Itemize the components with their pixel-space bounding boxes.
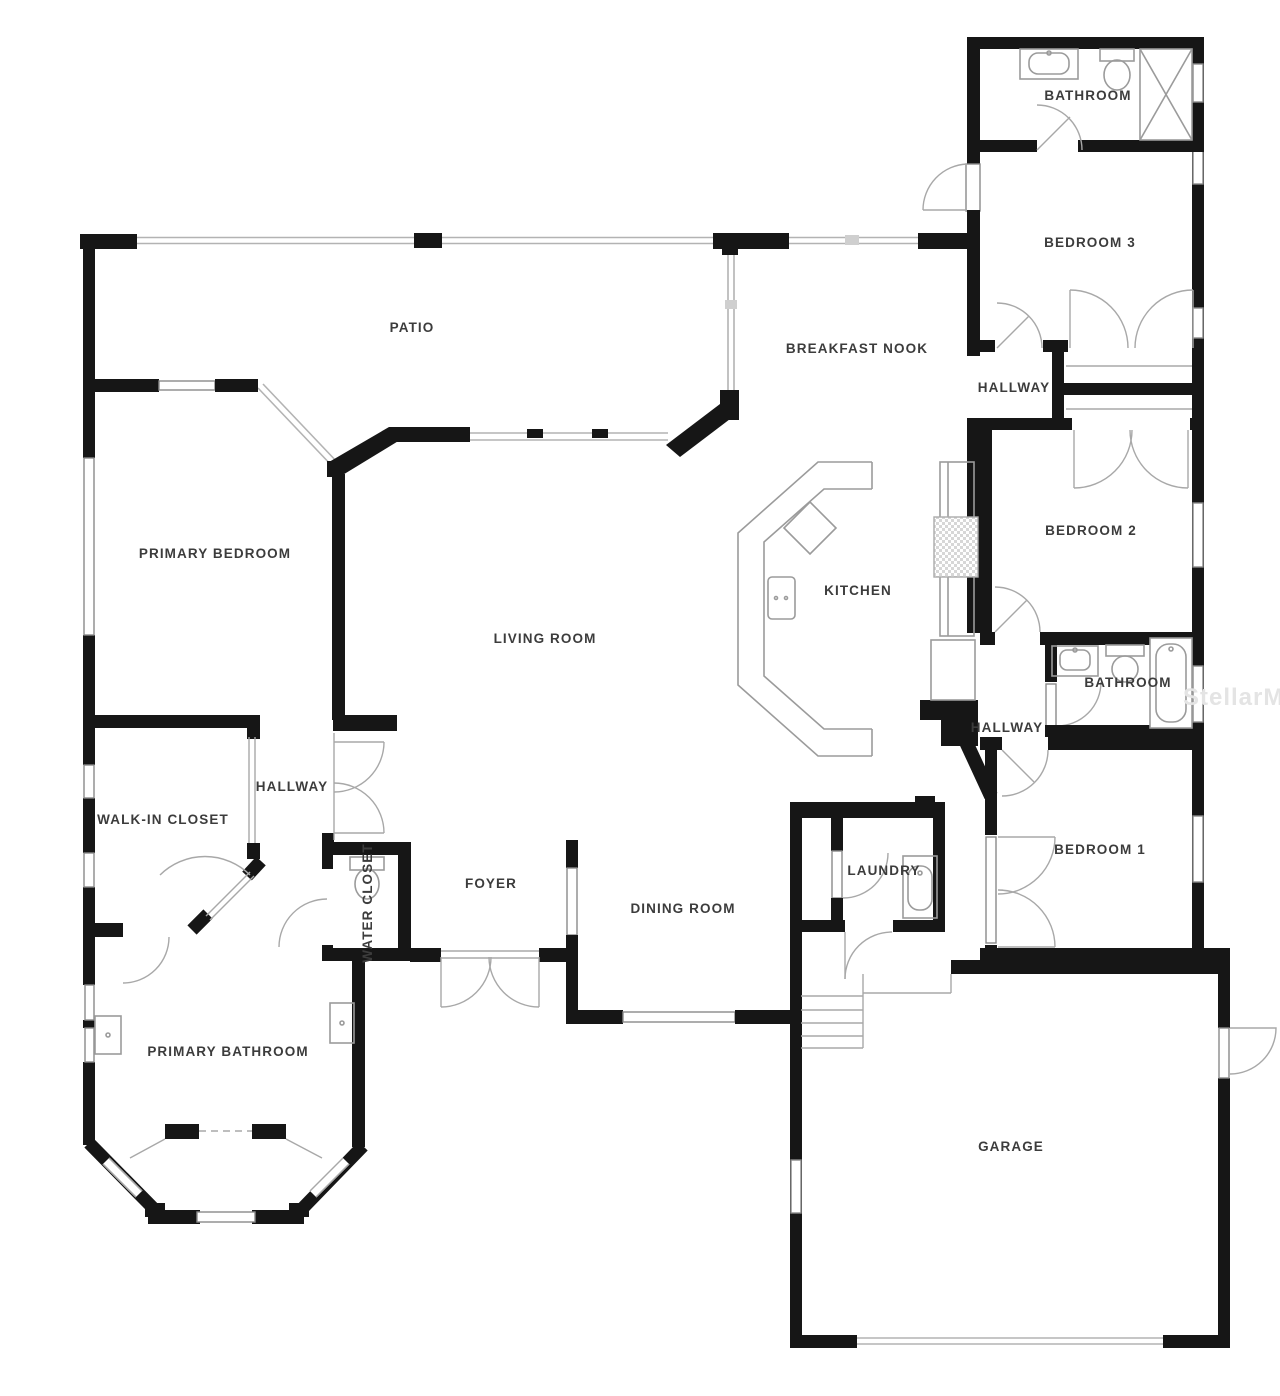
window <box>567 868 577 935</box>
closet-door-arc <box>1074 430 1132 488</box>
entry-door-arc <box>441 957 491 1007</box>
closet-door-arc <box>1135 290 1193 348</box>
stairs <box>801 974 951 1048</box>
left-exterior-wall <box>83 237 95 1145</box>
dining-room-walls <box>566 962 790 1024</box>
window <box>84 853 94 887</box>
room-label-walk-in-closet: WALK-IN CLOSET <box>97 812 229 827</box>
sliding-door-jamb <box>592 429 608 438</box>
closet-door-arc <box>998 837 1055 894</box>
sink <box>95 1016 121 1054</box>
room-label-bedroom-1: BEDROOM 1 <box>1054 842 1146 857</box>
room-label-garage: GARAGE <box>978 1139 1044 1154</box>
window <box>84 765 94 798</box>
room-label-patio: PATIO <box>390 320 435 335</box>
door-arc <box>334 783 384 833</box>
room-label-bedroom-2: BEDROOM 2 <box>1045 523 1137 538</box>
room-label-bedroom-3: BEDROOM 3 <box>1044 235 1136 250</box>
door-arc <box>1230 1028 1276 1074</box>
sink <box>330 1003 354 1043</box>
room-label-kitchen: KITCHEN <box>824 583 892 598</box>
window <box>84 458 94 635</box>
window <box>85 985 94 1020</box>
shower <box>1140 49 1192 140</box>
room-label-breakfast-nook: BREAKFAST NOOK <box>786 341 928 356</box>
window <box>197 1212 255 1222</box>
room-label-laundry: LAUNDRY <box>847 863 920 878</box>
sink <box>1020 49 1078 79</box>
laundry-room <box>790 796 945 1348</box>
room-label-primary-bedroom: PRIMARY BEDROOM <box>139 546 291 561</box>
room-label-hallway-lower: HALLWAY <box>971 720 1043 735</box>
room-label-primary-bathroom: PRIMARY BATHROOM <box>147 1044 308 1059</box>
foyer-walls <box>410 840 578 1007</box>
window <box>159 381 215 390</box>
entry-door-arc <box>489 957 539 1007</box>
room-label-bathroom-right: BATHROOM <box>1084 675 1171 690</box>
window <box>1193 64 1203 102</box>
closet-door-arc <box>998 890 1055 947</box>
closet-door-arc <box>1130 430 1188 488</box>
floor-plan: PATIO BREAKFAST NOOK BATHROOM BEDROOM 3 … <box>0 0 1280 1396</box>
room-labels: PATIO BREAKFAST NOOK BATHROOM BEDROOM 3 … <box>97 88 1171 1154</box>
door-arc <box>123 937 169 983</box>
refrigerator <box>931 640 975 700</box>
room-label-foyer: FOYER <box>465 876 517 891</box>
room-label-hallway-upper: HALLWAY <box>978 380 1050 395</box>
water-closet-room <box>279 842 411 961</box>
primary-bathroom-walls <box>89 960 365 1224</box>
window <box>1193 150 1203 184</box>
walk-in-closet-walls <box>87 723 261 983</box>
room-label-hallway-primary: HALLWAY <box>256 779 328 794</box>
door-arc <box>923 164 967 210</box>
window <box>1193 308 1203 338</box>
living-room-patio-wall <box>329 392 738 476</box>
stove <box>934 517 978 577</box>
floor-plan-page: PATIO BREAKFAST NOOK BATHROOM BEDROOM 3 … <box>0 0 1280 1396</box>
door-arc <box>845 932 892 979</box>
door-arc <box>279 899 327 947</box>
room-label-water-closet: WATER CLOSET <box>360 843 375 962</box>
primary-hallway <box>322 715 397 855</box>
window <box>1193 816 1203 882</box>
door-arc <box>160 857 250 875</box>
island-corner <box>784 502 836 554</box>
window <box>1193 503 1203 567</box>
sliding-door-jamb <box>527 429 543 438</box>
island-sink <box>768 577 795 619</box>
toilet <box>1100 49 1134 90</box>
window <box>85 1028 94 1062</box>
window <box>623 1012 735 1022</box>
watermark: StellarMLS <box>1183 684 1280 711</box>
room-label-living-room: LIVING ROOM <box>494 631 597 646</box>
room-label-bathroom-top: BATHROOM <box>1044 88 1131 103</box>
bay-tub <box>130 1124 322 1158</box>
window <box>791 1160 801 1213</box>
closet-door-arc <box>1070 290 1128 348</box>
door-arc <box>334 742 384 792</box>
room-label-dining-room: DINING ROOM <box>630 901 735 916</box>
sink <box>1052 646 1098 676</box>
kitchen-island <box>738 462 872 756</box>
bedroom-wing-walls <box>923 37 1230 962</box>
